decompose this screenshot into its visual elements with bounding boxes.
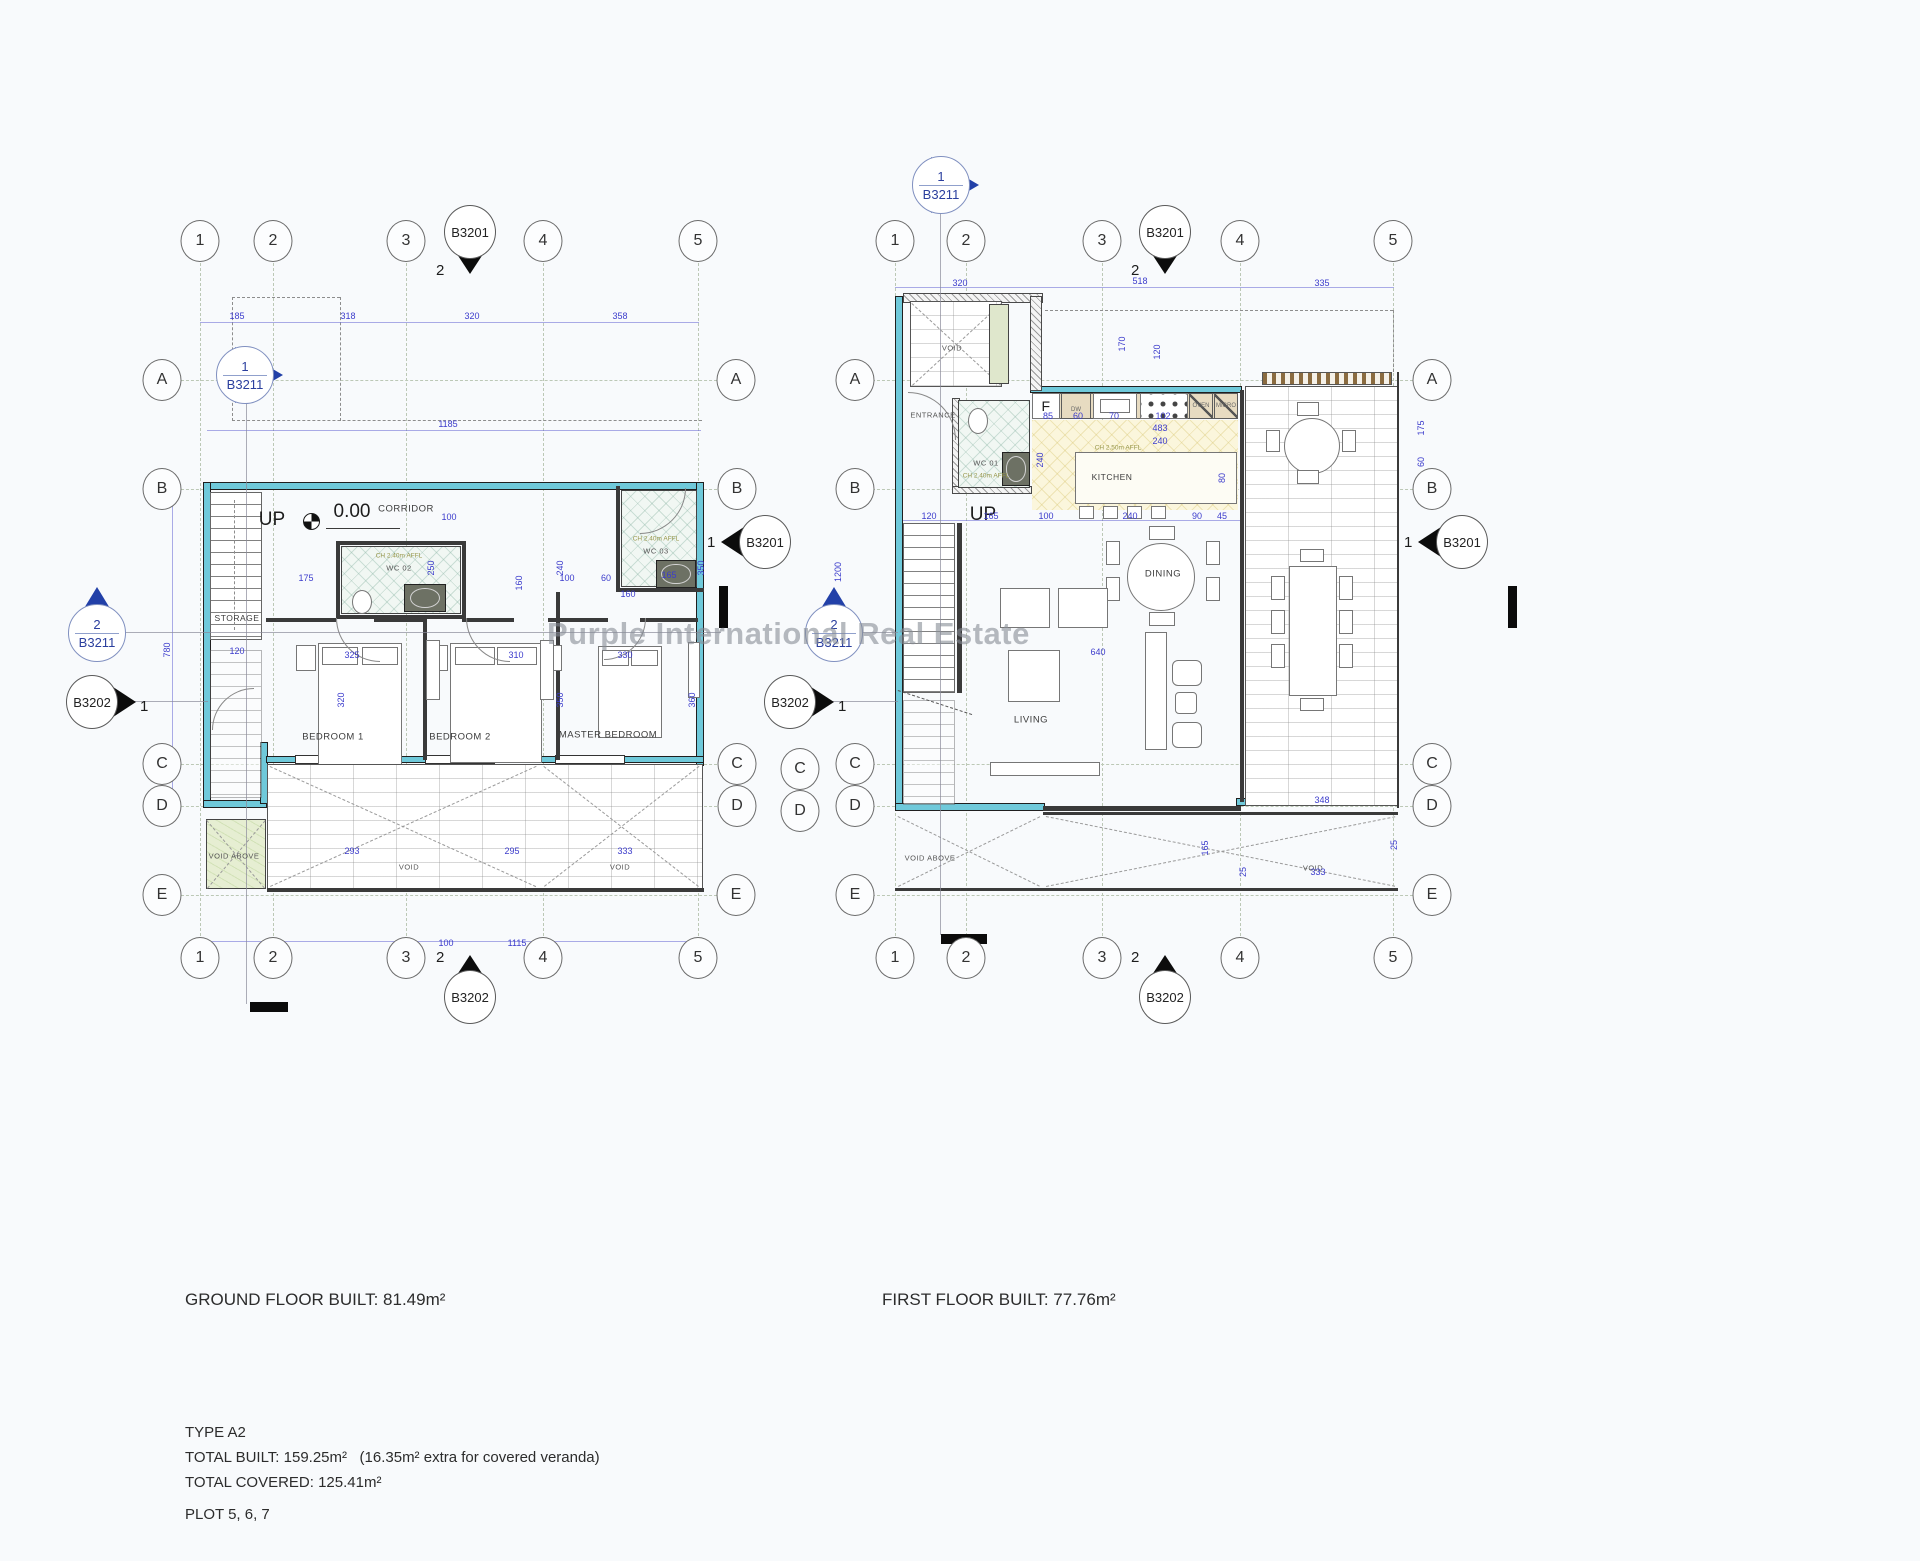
grid-bubble: D [718,785,757,827]
dimension-label: 70 [1109,411,1119,421]
dimension-label: 240 [1035,452,1045,467]
grid-bubble: 4 [1221,220,1260,262]
grid-bubble: B [143,468,182,510]
dimension-label: 483 [1152,423,1167,433]
section-code: B3211 [923,186,960,202]
grid-bubble: 5 [679,937,718,979]
dimension-label: 165 [661,570,676,580]
dimension-label: 120 [229,646,244,656]
dimension-label: 80 [1217,473,1227,483]
section-code: B3211 [79,634,116,650]
grid-bubble: E [143,874,182,916]
grid-bubble: B [718,468,757,510]
room-label: MICRO [1216,403,1236,409]
dimension-label: 240 [1152,436,1167,446]
grid-bubble: E [1413,874,1452,916]
ground-floor-caption: GROUND FLOOR BUILT: 81.49m² [185,1290,445,1310]
dimension-label: 60 [1073,411,1083,421]
dimension-label: 60 [1416,457,1426,467]
dimension-label: 325 [344,650,359,660]
dimension-label: 1185 [438,419,457,429]
grid-bubble: C [143,743,182,785]
dimension-label: 358 [612,311,627,321]
dimension-label: 293 [344,846,359,856]
room-label: WC 03 [643,547,668,556]
dimension-label: 45 [1217,511,1227,521]
section-number: 2 [436,949,444,966]
dimension-label: 160 [620,589,635,599]
dimension-label: 350 [696,560,706,575]
dimension-label: 310 [508,650,523,660]
grid-bubble: 3 [387,220,426,262]
grid-bubble: E [836,874,875,916]
section-number: 1 [707,534,715,551]
dimension-label: 175 [1416,420,1426,435]
section-code: B3202 [764,675,816,729]
dimension-label: 165 [1200,840,1210,855]
grid-bubble: D [836,785,875,827]
grid-bubble: B [1413,468,1452,510]
room-label: STORAGE [215,613,260,623]
room-label: VOID ABOVE [905,854,956,863]
dimension-label: 240 [1122,511,1137,521]
grid-bubble: 2 [254,937,293,979]
dimension-label: 25 [1389,840,1399,850]
dimension-label: 165 [983,511,998,521]
section-number: 2 [75,617,119,634]
grid-bubble: 2 [947,937,986,979]
section-number: 1 [838,698,846,715]
room-label: DINING [1145,569,1181,580]
dimension-label: 1200 [833,562,843,582]
grid-bubble: 1 [181,220,220,262]
dimension-label: 25 [1238,867,1248,877]
section-code: B3202 [1139,970,1191,1024]
room-label: UP [259,509,285,531]
room-label: ENTRANCE [910,411,955,420]
dimension-label: 780 [162,642,172,657]
grid-bubble: 1 [876,220,915,262]
room-label: VOID ABOVE [209,852,260,861]
grid-bubble: 1 [181,937,220,979]
dimension-label: 60 [601,573,611,583]
room-label: LIVING [1014,715,1048,726]
grid-bubble: C [836,743,875,785]
grid-bubble: 1 [876,937,915,979]
dimension-label: 185 [229,311,244,321]
room-label: CH 2.50m AFFL [1095,445,1142,452]
room-label: CORRIDOR [378,504,434,515]
grid-bubble: 4 [524,937,563,979]
grid-bubble: C [1413,743,1452,785]
total-built-label: TOTAL BUILT: 159.25m² (16.35m² extra for… [185,1449,600,1466]
dimension-label: 120 [921,511,936,521]
grid-bubble: 3 [1083,937,1122,979]
first-floor-caption: FIRST FLOOR BUILT: 77.76m² [882,1290,1116,1310]
dimension-label: 160 [514,575,524,590]
grid-bubble: 5 [1374,937,1413,979]
grid-bubble: 3 [1083,220,1122,262]
room-label: MASTER BEDROOM [559,730,657,741]
section-number: 1 [223,359,267,376]
section-number: 1 [919,169,963,186]
dimension-label: 295 [504,846,519,856]
grid-bubble: 3 [387,937,426,979]
plot-label: PLOT 5, 6, 7 [185,1506,270,1523]
room-label: KITCHEN [1092,472,1133,482]
room-label: CH 2.40m AFFL [633,536,680,543]
watermark: Purple International Real Estate [547,616,1030,652]
dimension-label: 348 [1314,795,1329,805]
grid-bubble: D [1413,785,1452,827]
dimension-label: 250 [426,560,436,575]
section-code: B3201 [739,515,791,569]
dimension-label: 175 [298,573,313,583]
grid-bubble: C [718,743,757,785]
dimension-label: 640 [1090,647,1105,657]
type-label: TYPE A2 [185,1424,246,1441]
dimension-label: 1115 [508,938,527,948]
section-number: 2 [436,262,444,279]
dimension-label: 333 [1310,867,1325,877]
grid-bubble: E [717,874,756,916]
section-number: 2 [1131,949,1139,966]
room-label: 0.00 [334,501,371,523]
dimension-label: 85 [1043,411,1053,421]
dimension-label: 100 [559,573,574,583]
section-code: B3202 [444,970,496,1024]
total-built-value: TOTAL BUILT: 159.25m² [185,1449,347,1466]
grid-bubble: D [781,790,820,832]
dimension-label: 100 [438,938,453,948]
dimension-label: 320 [336,692,346,707]
grid-bubble: B [836,468,875,510]
room-label: VOID [399,863,419,872]
grid-bubble: 2 [254,220,293,262]
grid-bubble: C [781,748,820,790]
room-label: CH 2.40m AFFL [376,553,423,560]
section-code: B3202 [66,675,118,729]
dimension-label: 170 [1117,336,1127,351]
total-covered-label: TOTAL COVERED: 125.41m² [185,1474,381,1491]
dimension-label: 320 [952,278,967,288]
section-number: 1 [140,698,148,715]
room-label: BEDROOM 1 [302,732,364,743]
room-label: VOID [942,344,962,353]
grid-bubble: A [717,359,756,401]
grid-bubble: 2 [947,220,986,262]
dimension-label: 100 [441,512,456,522]
section-code: B3201 [1436,515,1488,569]
grid-bubble: 5 [679,220,718,262]
floorplan-sheet: 1234512345ABCDEABCDE UP0.00CORRIDORSTORA… [0,0,1920,1561]
room-label: WC 02 [386,564,411,573]
dimension-label: 100 [1038,511,1053,521]
grid-bubble: A [836,359,875,401]
dimension-label: 360 [687,692,697,707]
total-built-note: (16.35m² extra for covered veranda) [360,1449,600,1466]
section-number: 1 [1404,534,1412,551]
grid-bubble: A [1413,359,1452,401]
grid-bubble: A [143,359,182,401]
room-label: CH 2.40m AFFL [963,473,1010,480]
dimension-label: 333 [617,846,632,856]
grid-bubble: 4 [524,220,563,262]
dimension-label: 102 [1155,411,1170,421]
section-code: B3211 [227,376,264,392]
room-label: VOID [610,863,630,872]
dimension-label: 90 [1192,511,1202,521]
room-label: OVEN [1192,403,1209,409]
grid-bubble: 4 [1221,937,1260,979]
dimension-label: 318 [340,311,355,321]
dimension-label: 320 [464,311,479,321]
section-code: B3201 [444,205,496,259]
dimension-label: 335 [1314,278,1329,288]
room-label: WC 01 [973,459,998,468]
room-label: BEDROOM 2 [429,732,491,743]
grid-bubble: D [143,785,182,827]
dimension-label: 350 [555,692,565,707]
section-number: 2 [1131,262,1139,279]
grid-bubble: 5 [1374,220,1413,262]
dimension-label: 120 [1152,344,1162,359]
section-code: B3201 [1139,205,1191,259]
